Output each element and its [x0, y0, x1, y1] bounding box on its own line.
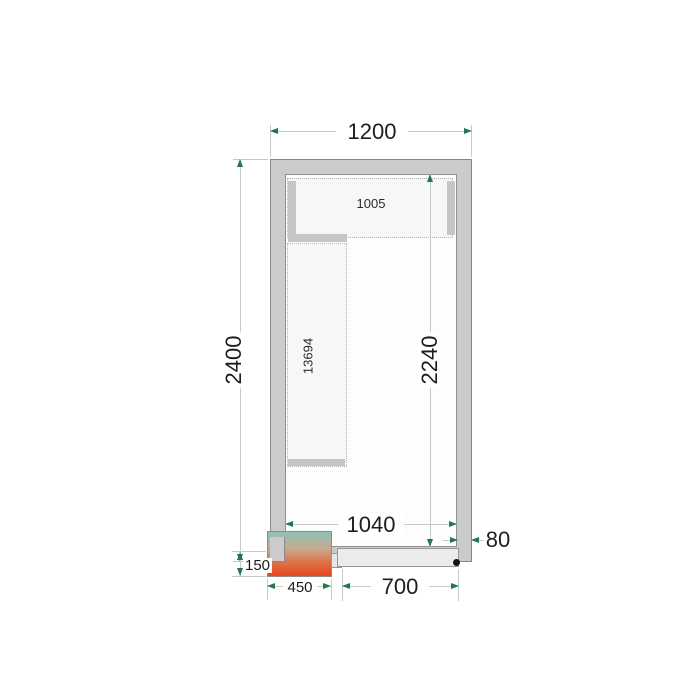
side-shelf-label: 13694 [301, 335, 316, 377]
dim-outer-width-label: 1200 [336, 121, 408, 143]
dim-inner-depth-label: 2240 [418, 333, 442, 388]
arrow-right-icon [450, 537, 458, 543]
dim-protrusion-witness-bottom [232, 576, 266, 577]
top-shelf-label: 1005 [341, 197, 401, 210]
arrow-up-icon [427, 174, 433, 182]
dim-wall-thickness-tail-left [443, 540, 450, 541]
dim-inner-width-label: 1040 [338, 514, 404, 536]
dim-unit-width-witness-right [331, 579, 332, 600]
side-shelf-support-bottom [288, 459, 345, 466]
arrow-left-icon [342, 583, 350, 589]
dim-outer-depth-label: 2400 [222, 333, 246, 388]
side-shelf [287, 243, 347, 467]
top-shelf-support-bottom [288, 234, 347, 242]
dim-wall-thickness-label: 80 [484, 529, 512, 551]
door-panel [337, 548, 459, 567]
dim-protrusion-label: 150 [243, 558, 272, 573]
arrow-right-icon [464, 128, 472, 134]
arrow-down-icon [427, 539, 433, 547]
floor-plan-canvas: 1200 2400 2240 1040 700 450 150 80 1005 … [0, 0, 700, 700]
arrow-left-icon [270, 128, 278, 134]
arrow-right-icon [323, 583, 331, 589]
arrow-left-icon [285, 521, 293, 527]
arrow-left-icon [471, 537, 479, 543]
arrow-right-icon [451, 583, 459, 589]
top-shelf-support-right [447, 181, 455, 235]
wall-corner-overlap [270, 537, 285, 562]
dim-unit-width-label: 450 [283, 580, 317, 595]
arrow-right-icon [449, 521, 457, 527]
top-shelf-support-left [288, 181, 296, 235]
dim-door-width-label: 700 [371, 576, 429, 598]
arrow-up-icon [237, 159, 243, 167]
arrow-left-icon [267, 583, 275, 589]
door-hinge-dot [453, 559, 460, 566]
